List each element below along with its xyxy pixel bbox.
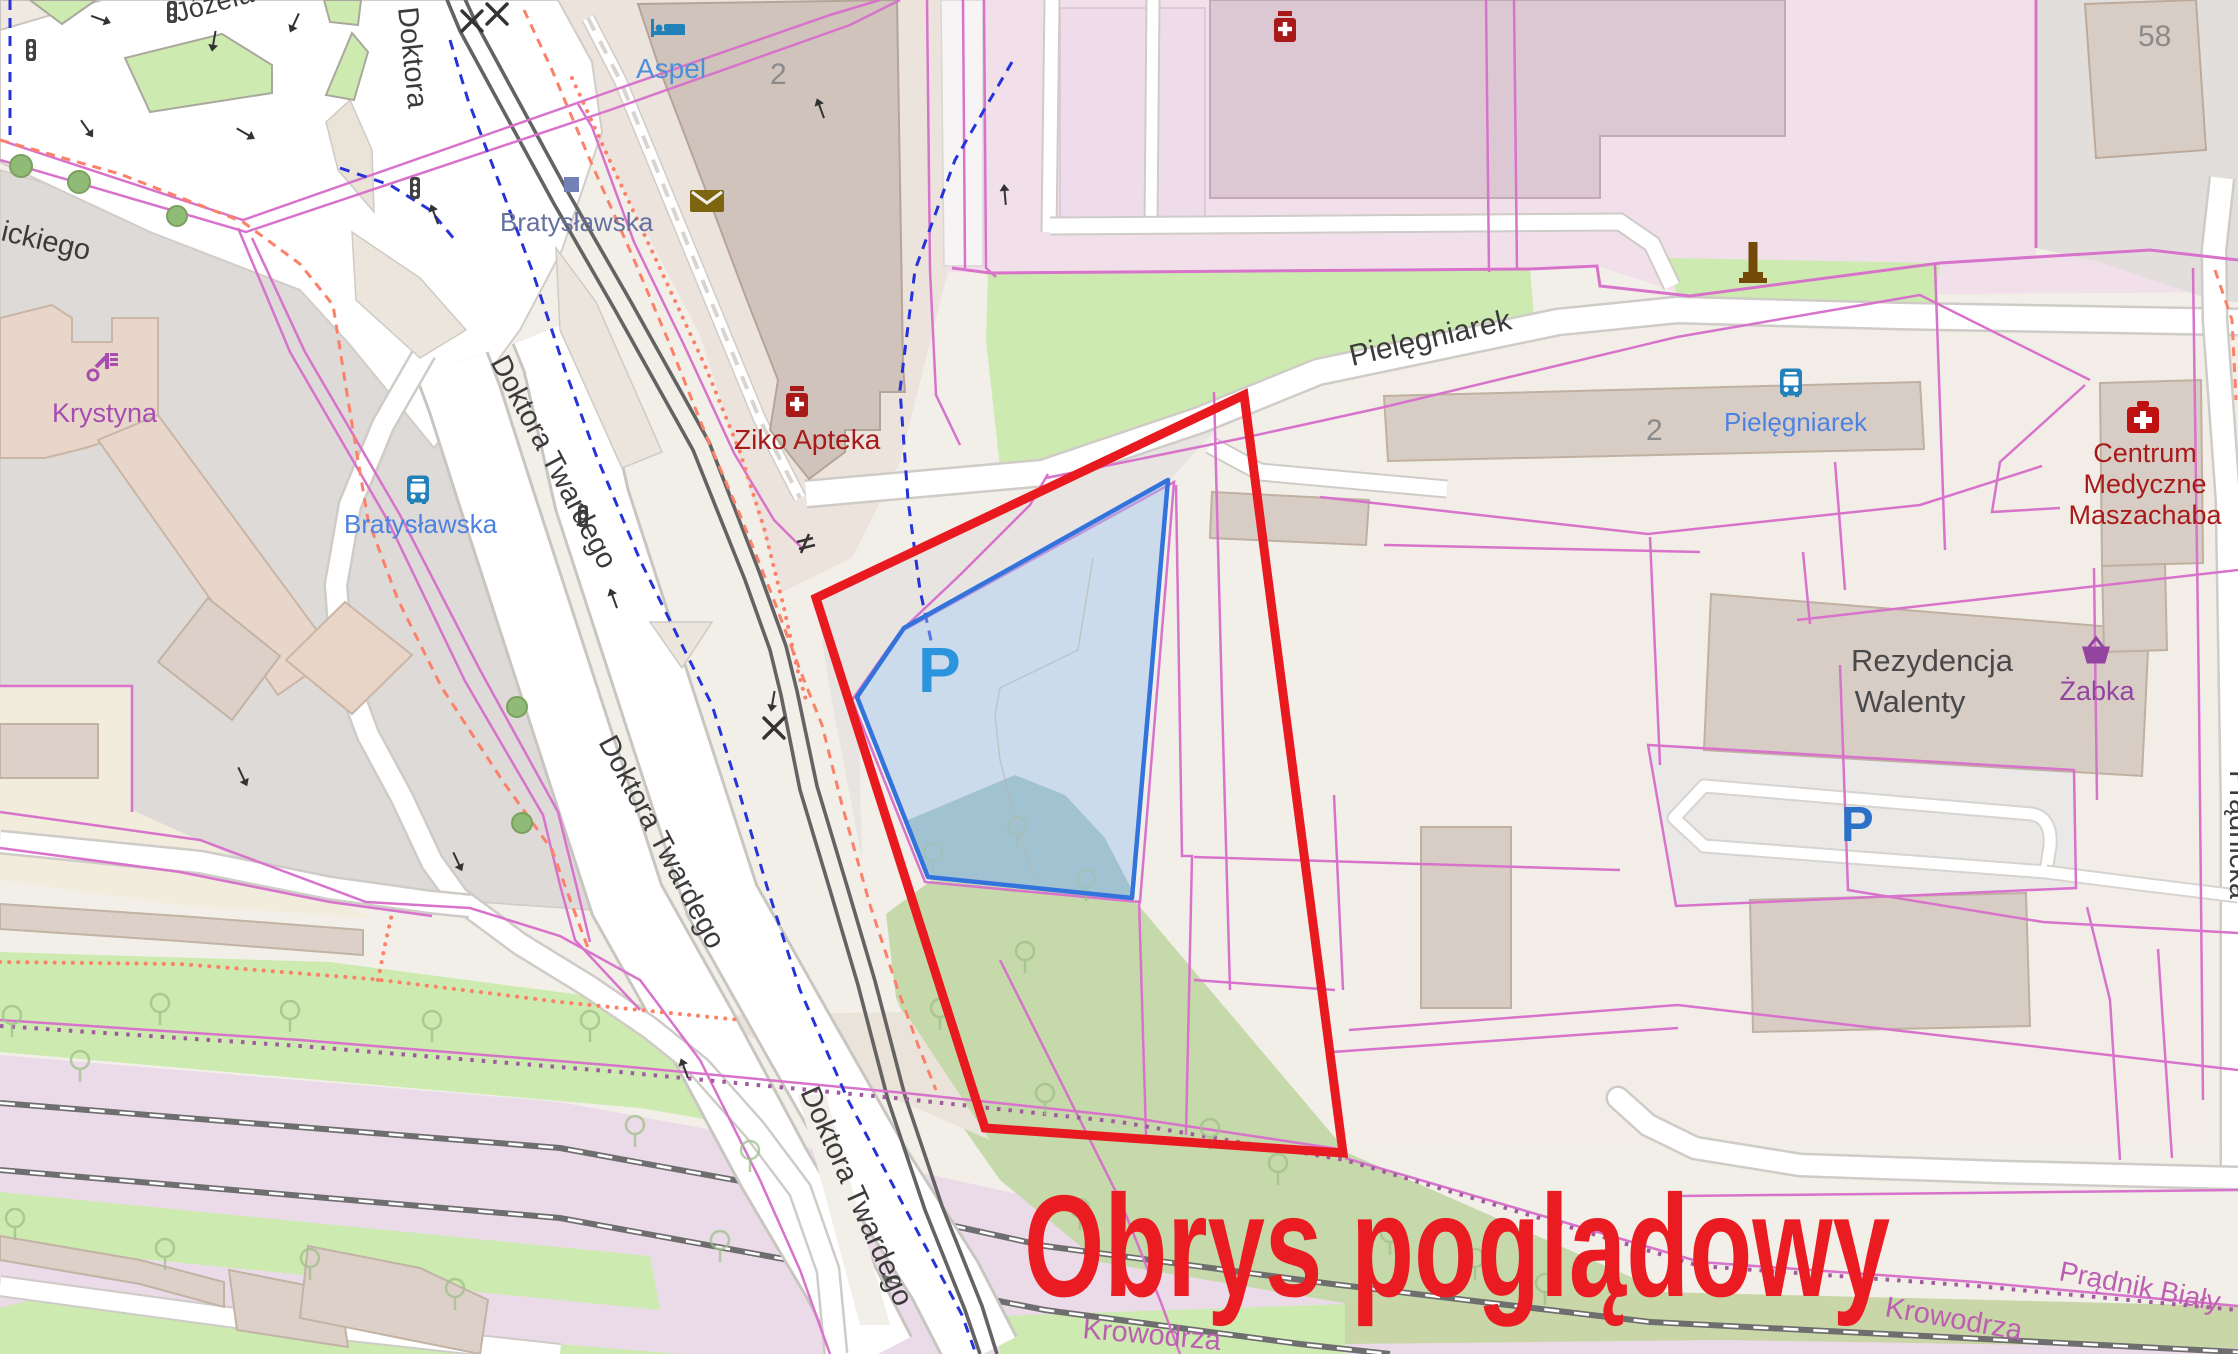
svg-text:P: P <box>918 634 961 706</box>
svg-text:Bratysławska: Bratysławska <box>344 509 498 539</box>
svg-text:Żabka: Żabka <box>2059 675 2135 706</box>
svg-text:Rezydencja: Rezydencja <box>1851 643 2014 678</box>
svg-text:Prądnicka: Prądnicka <box>2223 770 2238 900</box>
svg-text:Walenty: Walenty <box>1855 684 1966 719</box>
svg-text:Centrum: Centrum <box>2093 438 2197 468</box>
svg-text:Medyczne: Medyczne <box>2083 469 2206 499</box>
svg-text:Ziko Apteka: Ziko Apteka <box>734 424 881 455</box>
svg-text:Aspel: Aspel <box>636 53 706 84</box>
svg-text:58: 58 <box>2138 20 2171 53</box>
svg-text:Pielęgniarek: Pielęgniarek <box>1724 407 1868 437</box>
svg-text:2: 2 <box>770 58 787 91</box>
svg-text:Bratysławska: Bratysławska <box>500 207 654 237</box>
svg-text:2: 2 <box>1646 414 1663 447</box>
svg-text:P: P <box>1841 798 1874 852</box>
svg-text:Maszachaba: Maszachaba <box>2068 500 2222 530</box>
svg-text:Krystyna: Krystyna <box>52 398 158 428</box>
svg-text:Obrys poglądowy: Obrys poglądowy <box>1024 1165 1890 1327</box>
